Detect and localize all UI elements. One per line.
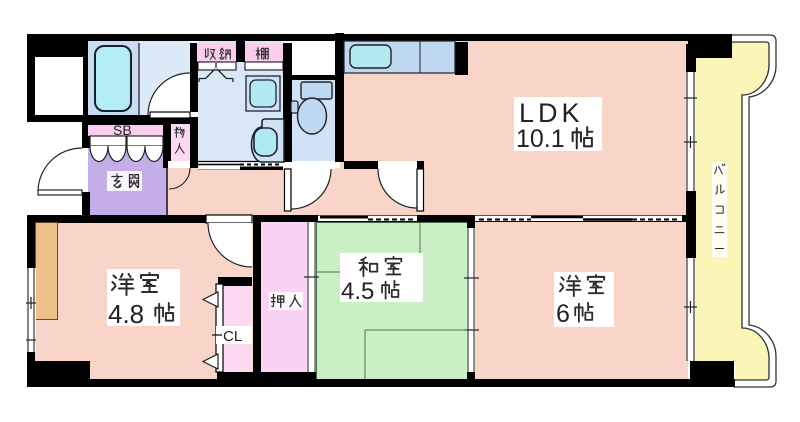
svg-text:10.1: 10.1 [516, 125, 565, 153]
svg-text:6: 6 [556, 300, 570, 328]
svg-text:4.5: 4.5 [341, 278, 374, 305]
svg-text:SB: SB [113, 122, 132, 138]
svg-text:4.8: 4.8 [108, 299, 144, 329]
svg-text:CL: CL [223, 328, 242, 345]
svg-text:LDK: LDK [519, 98, 584, 128]
